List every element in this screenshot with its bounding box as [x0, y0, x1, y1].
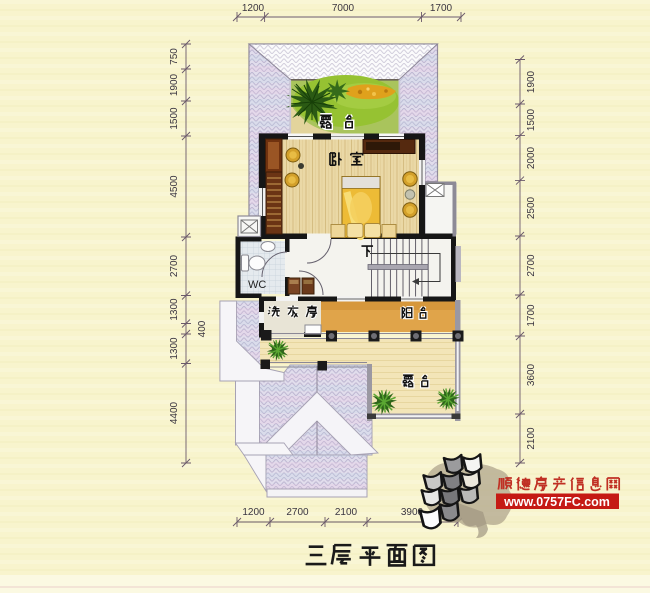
svg-text:1700: 1700: [526, 304, 537, 327]
svg-text:1900: 1900: [169, 73, 180, 96]
svg-text:7000: 7000: [332, 3, 355, 14]
svg-text:1900: 1900: [526, 70, 537, 93]
svg-text:1500: 1500: [526, 108, 537, 131]
svg-text:2700: 2700: [526, 254, 537, 277]
svg-text:1700: 1700: [430, 3, 453, 14]
svg-text:2100: 2100: [335, 507, 358, 518]
svg-text:750: 750: [169, 48, 180, 65]
svg-text:1500: 1500: [169, 107, 180, 130]
svg-text:www.0757FC.com: www.0757FC.com: [503, 495, 610, 509]
svg-text:4400: 4400: [169, 401, 180, 424]
svg-text:2100: 2100: [526, 427, 537, 450]
svg-text:1300: 1300: [169, 298, 180, 321]
svg-text:3600: 3600: [526, 363, 537, 386]
svg-text:2700: 2700: [169, 254, 180, 277]
svg-text:1300: 1300: [169, 337, 180, 360]
svg-text:400: 400: [197, 320, 208, 337]
svg-text:4500: 4500: [169, 175, 180, 198]
svg-text:2700: 2700: [286, 507, 309, 518]
svg-text:2500: 2500: [526, 196, 537, 219]
svg-text:1200: 1200: [242, 507, 265, 518]
svg-text:1200: 1200: [242, 3, 265, 14]
svg-text:2000: 2000: [526, 146, 537, 169]
svg-text:WC: WC: [248, 279, 266, 291]
